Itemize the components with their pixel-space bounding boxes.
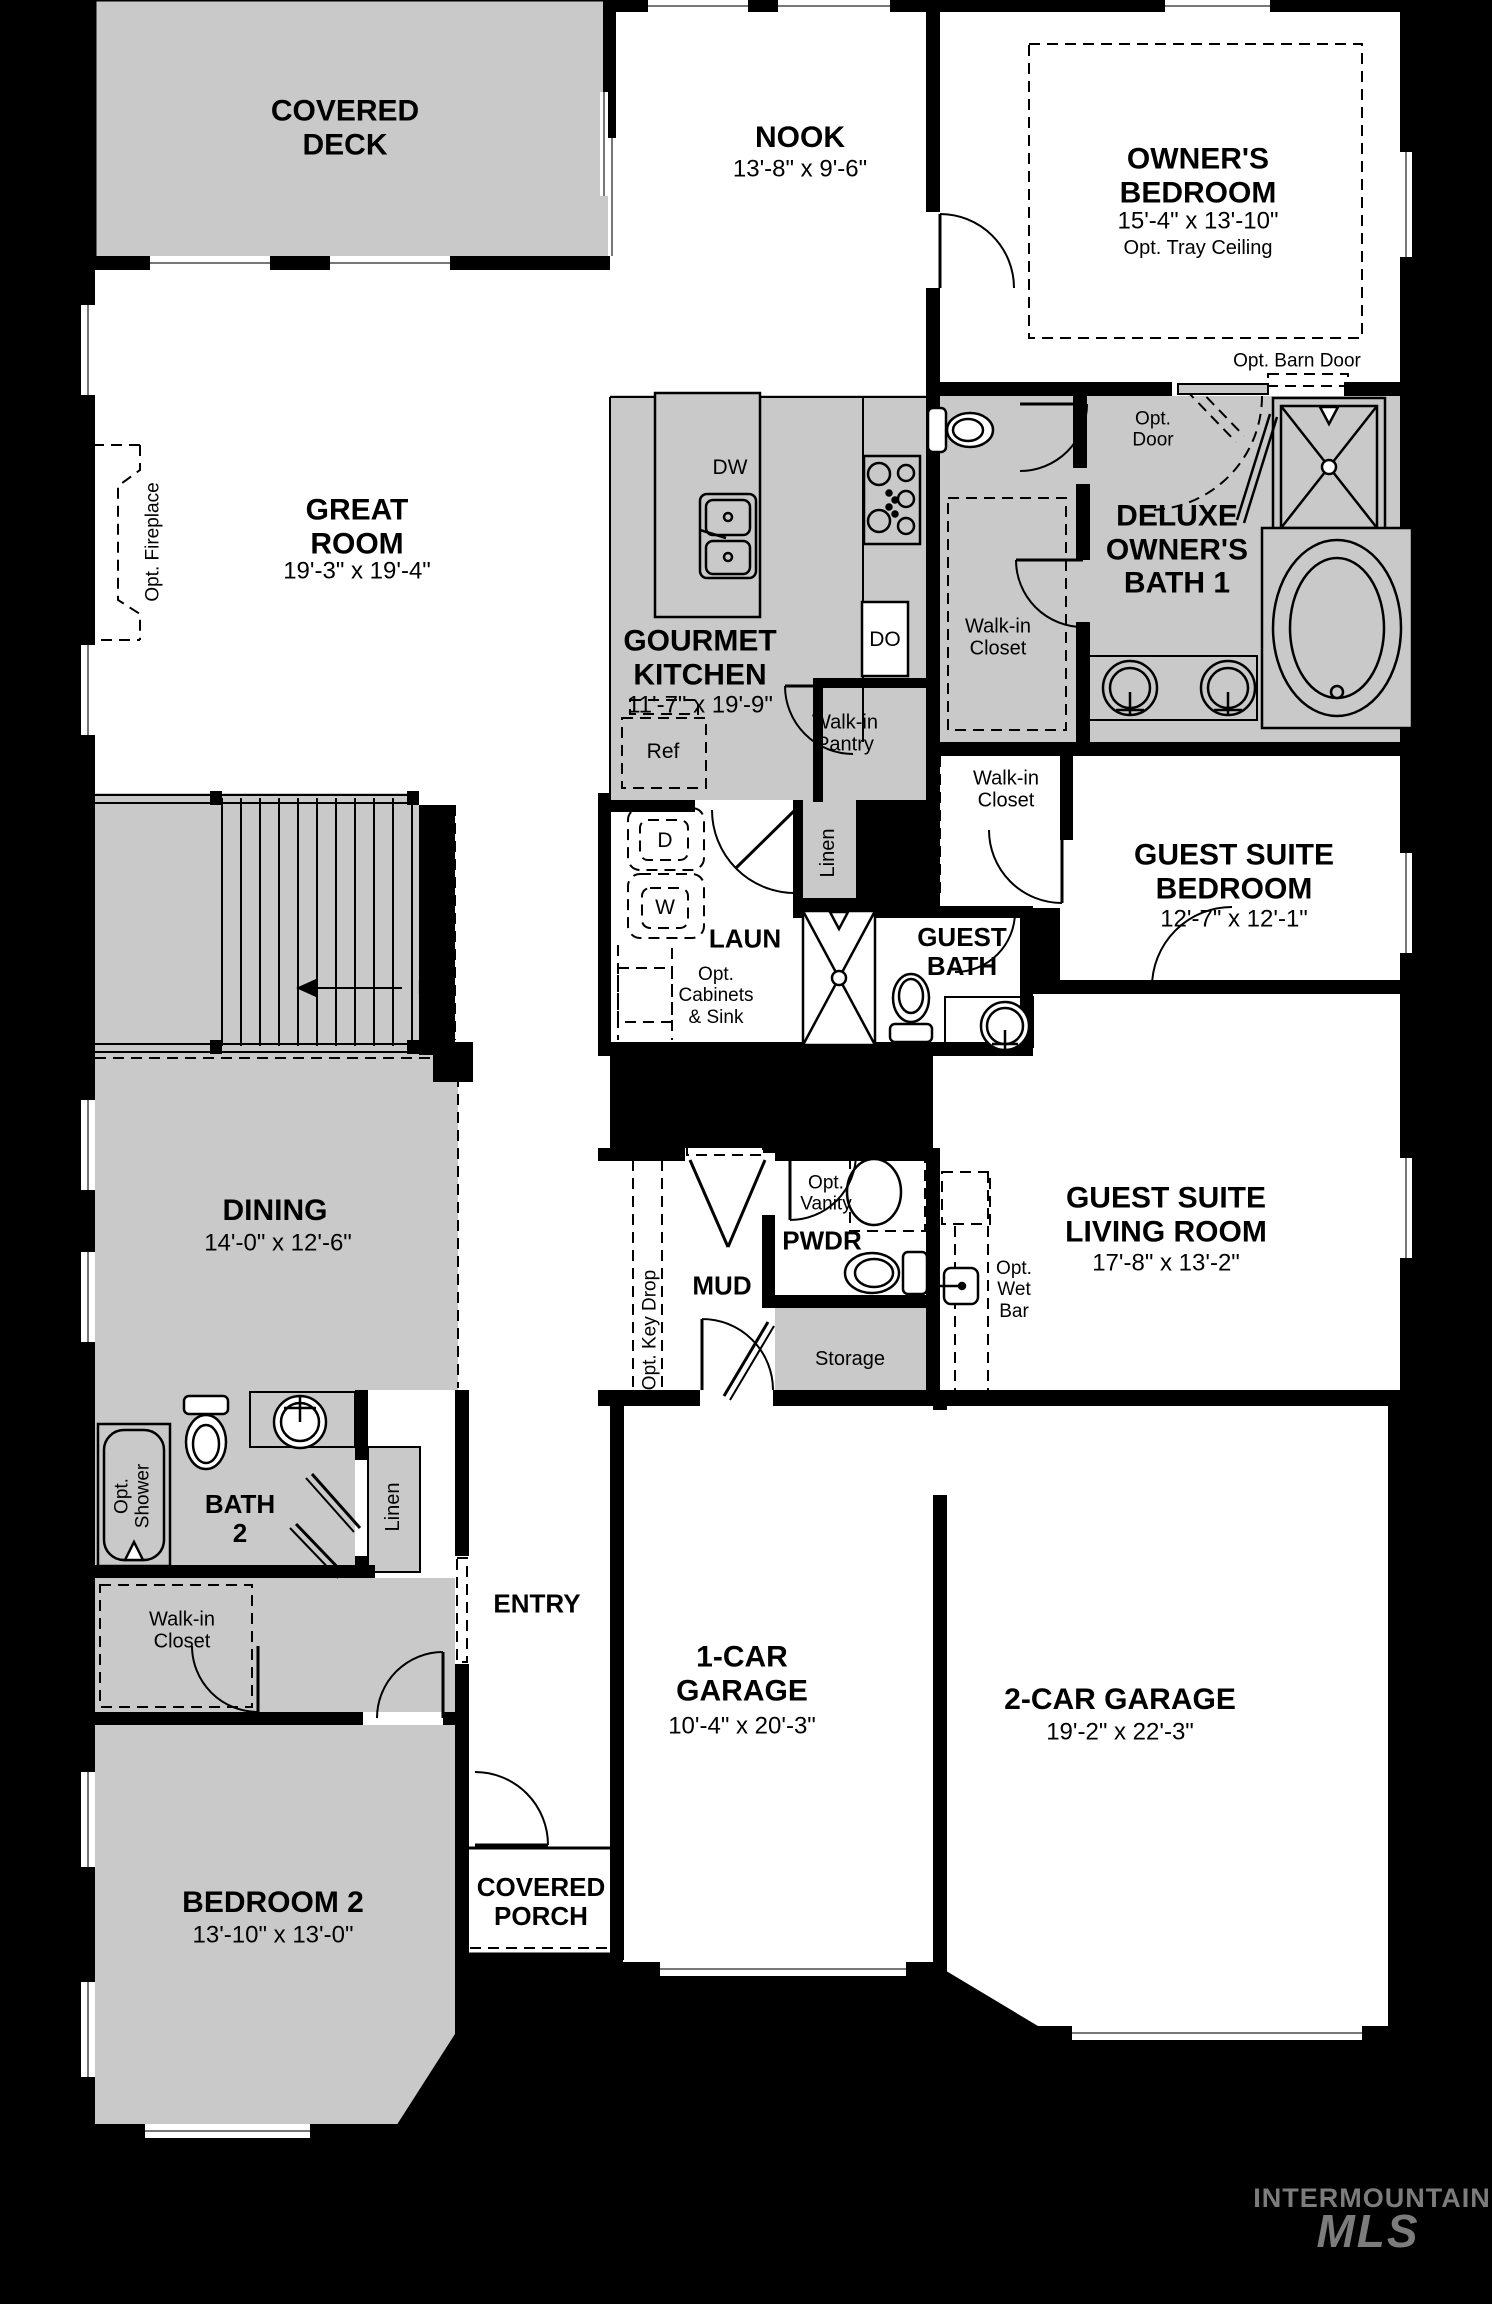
- floor-plan-drawing: [0, 0, 1492, 2304]
- storage-area: [775, 1308, 926, 1396]
- covered-deck-area: [95, 0, 610, 268]
- stairs-area: [95, 793, 419, 1055]
- guest-closet-area: [933, 742, 1060, 908]
- floor-plan: COVERED DECK NOOK 13'-8" x 9'-6" OWNER'S…: [0, 0, 1492, 2304]
- bedroom2-area: [88, 1718, 465, 2138]
- guest-bedroom-area: [1060, 742, 1412, 984]
- hall-area: [455, 800, 610, 1400]
- garage-area: [623, 1403, 1400, 2040]
- linen-lower-area: [368, 1447, 420, 1572]
- porch-area: [467, 1848, 615, 1954]
- entry-area: [467, 1390, 610, 1850]
- linen-upper-area: [800, 800, 856, 905]
- hall-closets-area: [262, 1578, 455, 1718]
- great-room-area: [81, 258, 610, 805]
- bedroom2-closet-area: [88, 1578, 262, 1718]
- nook-area: [610, 0, 930, 400]
- dining-area: [95, 1055, 458, 1390]
- owners-bedroom-area: [926, 0, 1412, 392]
